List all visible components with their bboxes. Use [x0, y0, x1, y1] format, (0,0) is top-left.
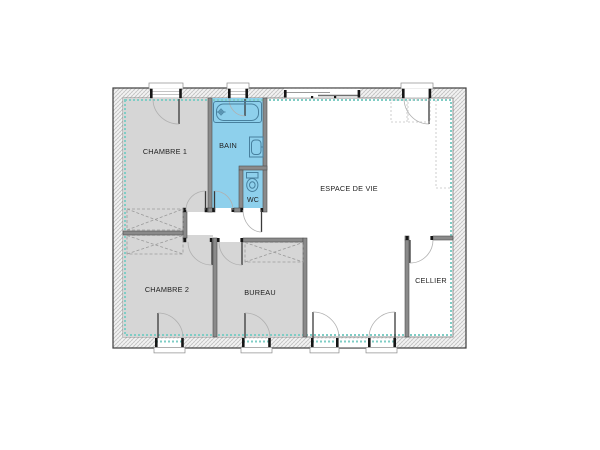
- floor-plan-page: CHAMBRE 1 BAIN WC ESPACE DE VIE CHAMBRE …: [0, 0, 600, 450]
- room-label-bain: BAIN: [219, 141, 237, 150]
- floor-plan-drawing: CHAMBRE 1 BAIN WC ESPACE DE VIE CHAMBRE …: [0, 0, 600, 450]
- room-label-chambre2: CHAMBRE 2: [145, 285, 189, 294]
- window-espace-de-vie: [284, 89, 360, 99]
- room-label-cellier: CELLIER: [415, 276, 447, 285]
- room-label-espace-de-vie: ESPACE DE VIE: [320, 184, 378, 193]
- room-label-bureau: BUREAU: [244, 288, 276, 297]
- room-label-wc: WC: [247, 197, 259, 204]
- room-label-chambre1: CHAMBRE 1: [143, 147, 187, 156]
